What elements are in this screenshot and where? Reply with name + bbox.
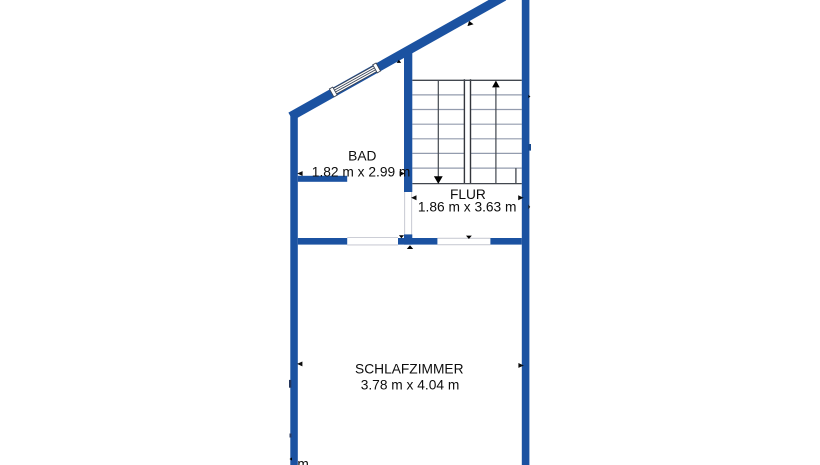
svg-text:1.86 m x 3.63 m: 1.86 m x 3.63 m (418, 200, 517, 215)
svg-text:m: m (297, 457, 308, 465)
svg-text:SCHLAFZIMMER: SCHLAFZIMMER (355, 361, 464, 376)
svg-text:BAD: BAD (348, 149, 376, 164)
svg-text:1.82 m x 2.99 m: 1.82 m x 2.99 m (312, 165, 411, 180)
svg-text:3.78 m x 4.04 m: 3.78 m x 4.04 m (361, 378, 460, 393)
